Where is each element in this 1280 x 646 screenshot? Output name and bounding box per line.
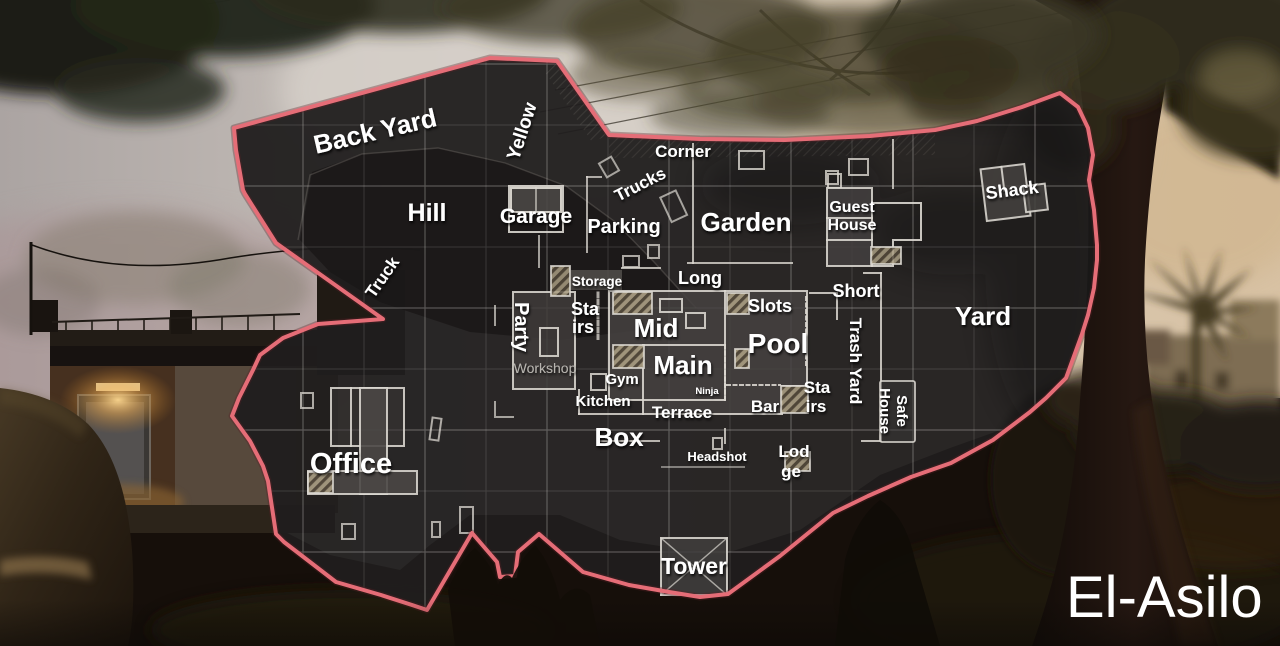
svg-text:Lod: Lod: [778, 442, 809, 461]
svg-text:Sta: Sta: [571, 299, 600, 319]
svg-text:Terrace: Terrace: [652, 403, 712, 422]
svg-text:Party: Party: [510, 302, 532, 353]
svg-text:House: House: [876, 388, 893, 434]
svg-text:Long: Long: [678, 268, 722, 288]
svg-text:Pool: Pool: [748, 328, 809, 359]
svg-text:Short: Short: [833, 281, 880, 301]
svg-text:Yard: Yard: [955, 301, 1011, 331]
svg-text:Storage: Storage: [572, 274, 623, 289]
svg-text:Corner: Corner: [655, 142, 711, 161]
svg-text:Headshot: Headshot: [687, 449, 747, 464]
svg-text:irs: irs: [806, 397, 827, 416]
svg-text:Ninja: Ninja: [695, 386, 719, 397]
svg-text:House: House: [828, 217, 877, 234]
svg-text:Mid: Mid: [634, 313, 679, 343]
svg-text:Gym: Gym: [605, 371, 638, 388]
svg-text:Garden: Garden: [700, 207, 791, 237]
svg-text:Slots: Slots: [748, 296, 792, 316]
svg-text:Trash Yard: Trash Yard: [846, 318, 865, 405]
svg-text:Office: Office: [310, 448, 392, 480]
svg-text:Main: Main: [653, 350, 712, 380]
svg-text:Tower: Tower: [661, 553, 727, 579]
svg-text:Sta: Sta: [804, 378, 831, 397]
svg-text:Safe: Safe: [893, 395, 910, 427]
svg-text:Guest: Guest: [829, 199, 875, 216]
svg-text:ge: ge: [781, 462, 801, 481]
svg-text:Bar: Bar: [751, 397, 780, 416]
svg-text:Parking: Parking: [587, 216, 660, 238]
svg-text:irs: irs: [572, 317, 594, 337]
svg-text:El-Asilo: El-Asilo: [1066, 565, 1263, 630]
svg-text:Workshop: Workshop: [514, 360, 577, 376]
svg-text:Kitchen: Kitchen: [575, 393, 630, 410]
svg-text:Box: Box: [594, 422, 644, 452]
svg-text:Garage: Garage: [500, 205, 572, 228]
svg-text:Hill: Hill: [408, 199, 447, 227]
